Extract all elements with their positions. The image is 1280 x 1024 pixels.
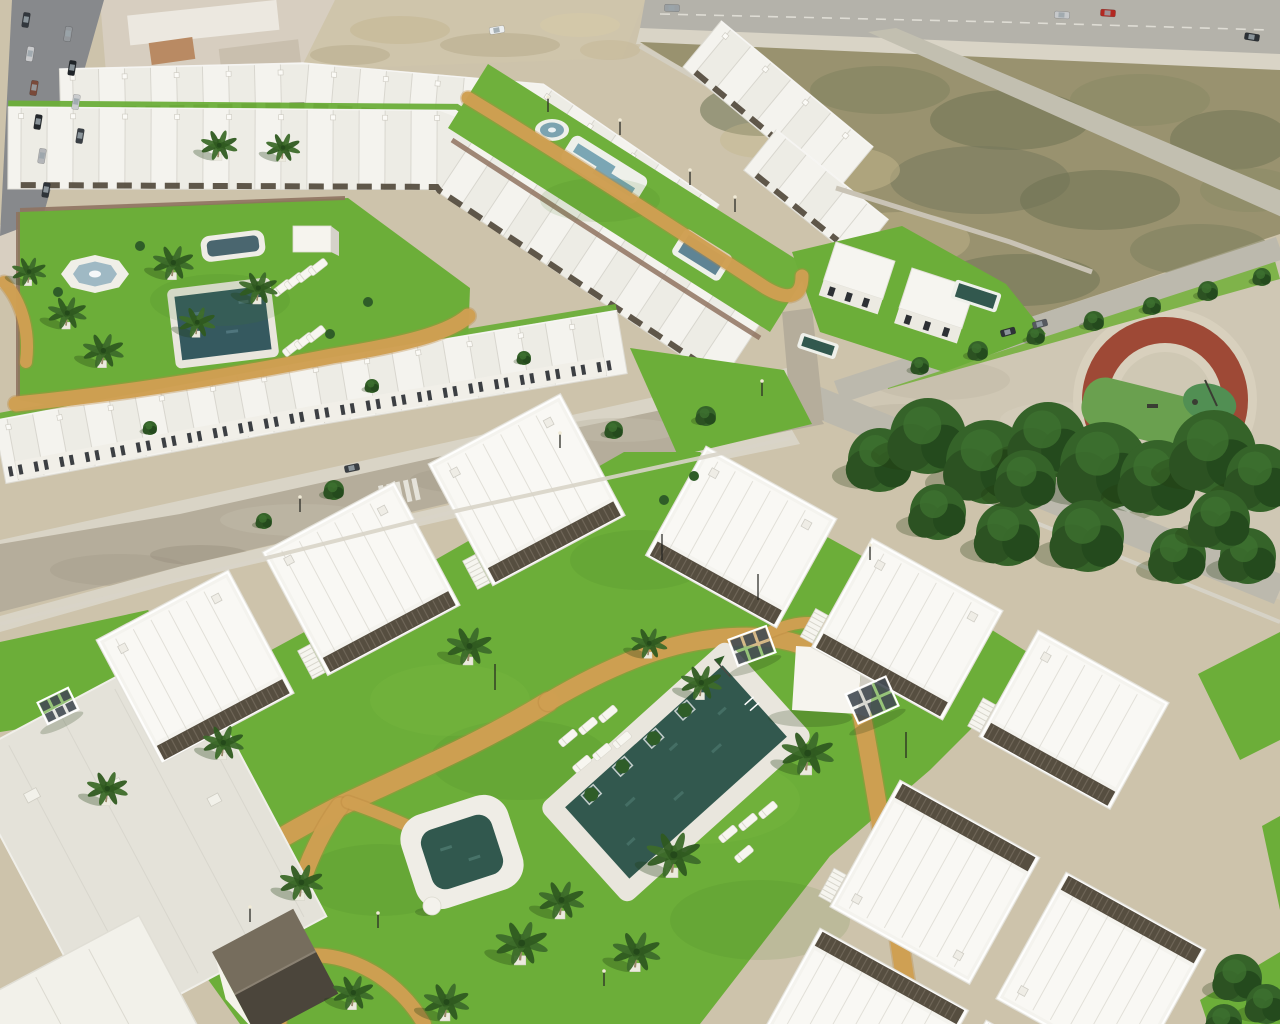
- ground-mottle: [580, 40, 640, 60]
- ground-mottle: [1020, 170, 1180, 230]
- ground-mottle: [310, 45, 390, 65]
- play-equipment: [1147, 404, 1158, 408]
- bush: [659, 495, 669, 505]
- car: [1100, 9, 1115, 17]
- garden-shed: [293, 226, 339, 256]
- octagon-fountain: [61, 255, 129, 293]
- ground-mottle: [350, 16, 450, 44]
- ground-mottle: [810, 66, 950, 114]
- play-equipment: [1192, 399, 1198, 405]
- car: [1054, 11, 1069, 19]
- bush: [135, 241, 145, 251]
- ground-mottle: [440, 33, 560, 57]
- aerial-render-canvas: [0, 0, 1280, 1024]
- car: [664, 4, 679, 12]
- bush: [689, 471, 699, 481]
- bush: [325, 329, 335, 339]
- ground-mottle: [540, 13, 620, 37]
- bush: [53, 287, 63, 297]
- bush: [363, 297, 373, 307]
- aerial-render: [0, 0, 1280, 1024]
